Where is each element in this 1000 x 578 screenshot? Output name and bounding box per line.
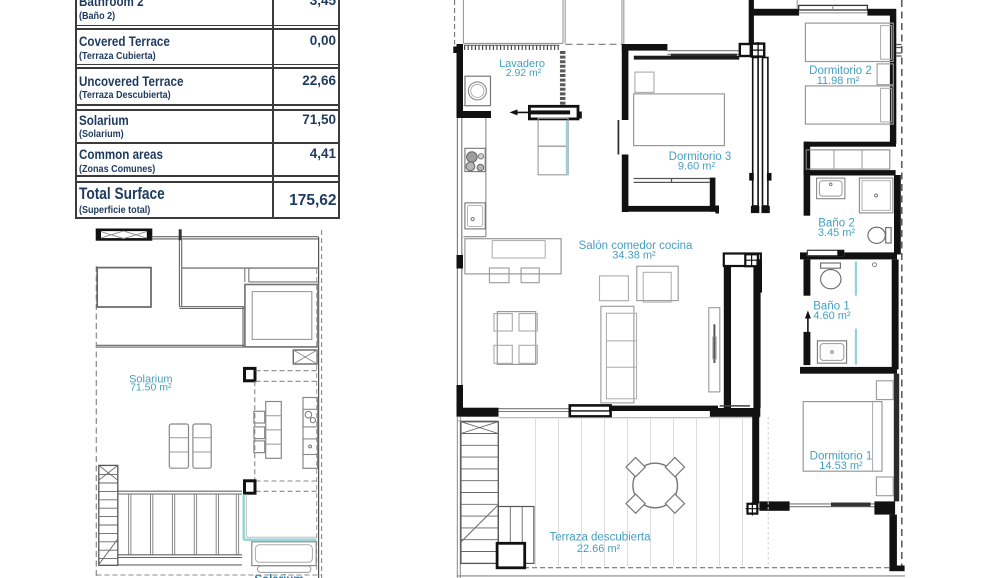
svg-text:4.60 m²: 4.60 m² (813, 310, 851, 322)
svg-text:Solarium: Solarium (254, 574, 303, 578)
svg-text:9.60 m²: 9.60 m² (678, 160, 716, 172)
svg-text:71.50 m²: 71.50 m² (130, 382, 172, 394)
svg-text:34.38 m²: 34.38 m² (612, 249, 656, 261)
svg-text:3.45 m²: 3.45 m² (818, 227, 856, 239)
svg-text:11.98 m²: 11.98 m² (817, 75, 860, 87)
svg-text:14.53 m²: 14.53 m² (819, 460, 863, 472)
svg-text:22.66 m²: 22.66 m² (577, 543, 621, 555)
svg-text:2.92 m²: 2.92 m² (506, 67, 542, 79)
svg-text:Terraza descubierta: Terraza descubierta (550, 531, 652, 543)
